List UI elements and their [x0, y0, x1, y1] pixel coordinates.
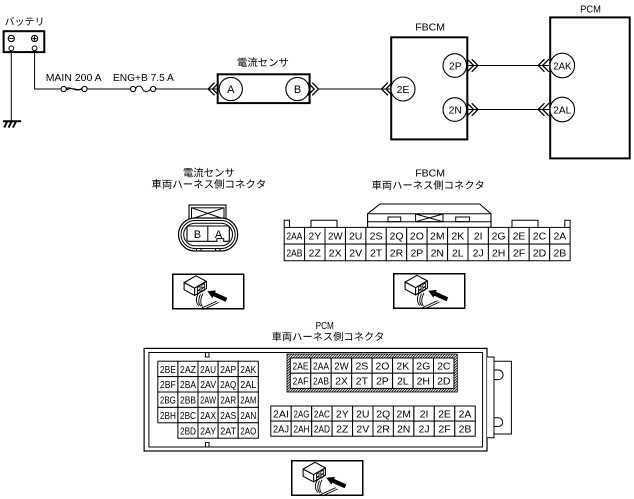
svg-text:PCM: PCM [316, 320, 334, 332]
svg-text:2AQ: 2AQ [220, 379, 236, 391]
svg-text:2T: 2T [370, 247, 383, 259]
svg-text:2Z: 2Z [309, 247, 322, 259]
svg-text:2AL: 2AL [240, 379, 256, 391]
svg-text:2Q: 2Q [389, 231, 403, 243]
svg-text:2A: 2A [459, 408, 472, 420]
svg-text:2O: 2O [410, 231, 424, 243]
svg-text:2L: 2L [452, 247, 464, 259]
svg-text:2D: 2D [533, 247, 547, 259]
svg-text:2W: 2W [334, 361, 349, 373]
svg-text:2Z: 2Z [336, 424, 349, 436]
svg-text:2F: 2F [513, 247, 525, 259]
svg-text:2J: 2J [473, 247, 484, 259]
svg-text:2AW: 2AW [200, 395, 216, 407]
svg-text:2I: 2I [474, 231, 483, 243]
svg-text:2F: 2F [438, 424, 450, 436]
svg-text:2AB: 2AB [313, 376, 329, 388]
svg-text:A: A [227, 84, 235, 96]
svg-text:2AZ: 2AZ [180, 364, 196, 376]
svg-text:2V: 2V [356, 424, 369, 436]
svg-text:FBCM: FBCM [415, 168, 445, 180]
svg-text:2N: 2N [431, 247, 444, 259]
svg-text:2AS: 2AS [220, 410, 236, 422]
svg-text:2N: 2N [449, 104, 462, 116]
svg-text:2P: 2P [449, 60, 462, 72]
svg-text:2BG: 2BG [160, 395, 176, 407]
svg-text:2E: 2E [397, 84, 410, 96]
svg-text:2AI: 2AI [273, 408, 289, 420]
svg-text:2AM: 2AM [240, 395, 256, 407]
svg-text:2G: 2G [492, 231, 506, 243]
svg-text:2K: 2K [396, 361, 409, 373]
svg-text:2BB: 2BB [180, 395, 196, 407]
svg-text:2U: 2U [356, 408, 369, 420]
svg-text:2K: 2K [451, 231, 464, 243]
svg-text:2C: 2C [533, 231, 547, 243]
svg-text:2I: 2I [420, 408, 429, 420]
svg-text:2AR: 2AR [220, 395, 236, 407]
svg-text:2R: 2R [376, 424, 390, 436]
svg-text:2AK: 2AK [240, 364, 256, 376]
svg-text:2A: 2A [553, 231, 566, 243]
svg-text:2V: 2V [349, 247, 362, 259]
svg-text:2H: 2H [417, 376, 430, 388]
svg-text:2U: 2U [349, 231, 362, 243]
svg-text:2AK: 2AK [553, 60, 571, 72]
svg-text:2BE: 2BE [160, 364, 176, 376]
svg-text:2AG: 2AG [294, 408, 310, 420]
svg-text:2L: 2L [397, 376, 409, 388]
svg-text:2AT: 2AT [220, 425, 237, 437]
svg-text:B: B [194, 229, 201, 241]
svg-text:2E: 2E [438, 408, 451, 420]
svg-text:2AE: 2AE [293, 361, 309, 373]
svg-text:2AX: 2AX [200, 410, 216, 422]
svg-text:2P: 2P [410, 247, 423, 259]
svg-text:2M: 2M [396, 408, 411, 420]
svg-text:2AP: 2AP [220, 364, 236, 376]
svg-text:2C: 2C [437, 361, 451, 373]
svg-text:2B: 2B [553, 247, 566, 259]
svg-text:2R: 2R [390, 247, 404, 259]
svg-text:2AA: 2AA [313, 361, 329, 373]
svg-text:2Q: 2Q [376, 408, 390, 420]
svg-text:2AN: 2AN [240, 410, 256, 422]
svg-text:2AF: 2AF [293, 376, 309, 388]
svg-text:2BA: 2BA [180, 379, 196, 391]
svg-text:2AL: 2AL [553, 104, 571, 116]
svg-text:2Y: 2Y [336, 408, 349, 420]
svg-text:2BC: 2BC [180, 410, 196, 422]
svg-text:2BH: 2BH [160, 410, 176, 422]
svg-text:2E: 2E [513, 231, 526, 243]
svg-text:2T: 2T [356, 376, 369, 388]
svg-text:2B: 2B [459, 424, 472, 436]
svg-text:2H: 2H [492, 247, 505, 259]
svg-text:2BF: 2BF [160, 379, 176, 391]
svg-text:2X: 2X [335, 376, 348, 388]
svg-text:2N: 2N [397, 424, 410, 436]
svg-text:2AY: 2AY [200, 425, 216, 437]
svg-text:2X: 2X [329, 247, 342, 259]
svg-text:FBCM: FBCM [415, 22, 445, 34]
svg-text:2AB: 2AB [286, 247, 302, 259]
svg-text:2AH: 2AH [294, 424, 310, 436]
svg-text:2AO: 2AO [240, 425, 256, 437]
svg-text:2S: 2S [370, 231, 383, 243]
svg-text:2D: 2D [437, 376, 451, 388]
svg-text:2AC: 2AC [314, 408, 330, 420]
svg-text:PCM: PCM [580, 4, 601, 16]
svg-text:2M: 2M [430, 231, 445, 243]
svg-text:ENG+B 7.5 A: ENG+B 7.5 A [113, 72, 174, 84]
svg-text:2J: 2J [419, 424, 430, 436]
svg-text:2AA: 2AA [286, 231, 302, 243]
svg-text:2Y: 2Y [308, 231, 321, 243]
svg-text:2P: 2P [376, 376, 389, 388]
svg-text:B: B [294, 84, 301, 96]
svg-text:2AD: 2AD [314, 424, 330, 436]
svg-text:2AJ: 2AJ [273, 424, 289, 436]
svg-text:2AU: 2AU [200, 364, 216, 376]
svg-text:2S: 2S [355, 361, 368, 373]
svg-text:MAIN 200 A: MAIN 200 A [46, 72, 102, 84]
svg-text:2AV: 2AV [200, 379, 216, 391]
svg-text:2O: 2O [375, 361, 389, 373]
svg-text:2BD: 2BD [180, 425, 196, 437]
svg-text:2G: 2G [416, 361, 430, 373]
svg-text:2W: 2W [328, 231, 343, 243]
